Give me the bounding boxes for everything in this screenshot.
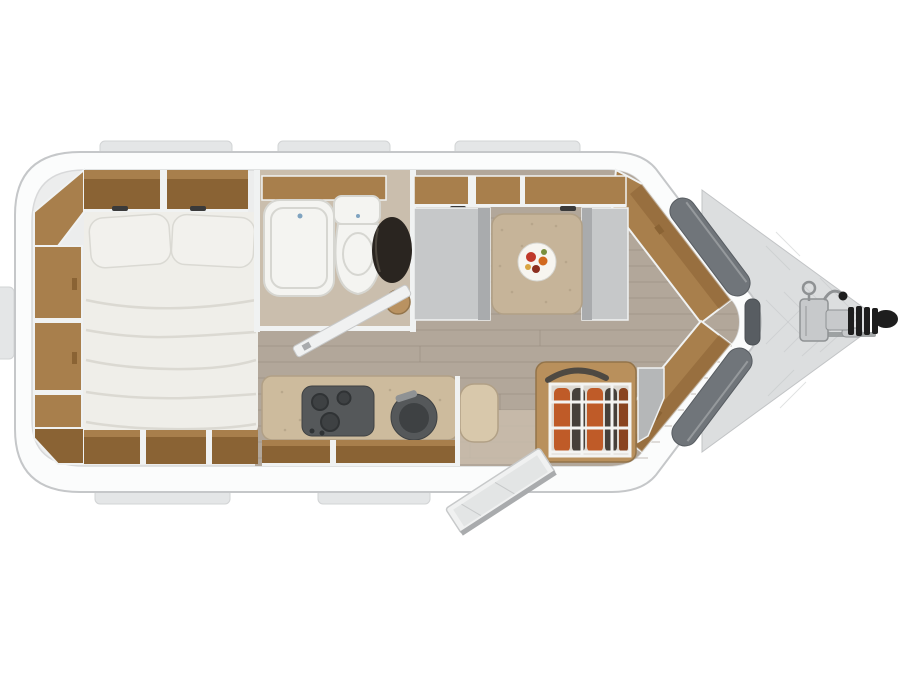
toilet-cistern — [334, 196, 380, 224]
bottle — [554, 388, 570, 452]
hob-knob — [320, 431, 325, 436]
shelf-edge — [84, 209, 248, 212]
nose-tip-panel — [745, 299, 760, 345]
brake-handle-knob — [839, 292, 848, 301]
fruit-orange — [539, 257, 548, 266]
bench-left-side-face — [478, 208, 490, 320]
shelf-divider — [160, 170, 167, 212]
fruit-yellow — [525, 264, 531, 270]
grip-rib — [856, 306, 862, 336]
hob-burner — [312, 394, 328, 410]
drawer-divider — [330, 440, 336, 466]
side-rail-tab — [0, 287, 14, 359]
locker-divider — [520, 176, 525, 206]
hob-knob — [310, 429, 315, 434]
drawer-lip — [262, 440, 456, 446]
foot-shelf-lip — [84, 430, 258, 437]
wardrobe-divider — [34, 390, 82, 395]
reading-light — [112, 206, 128, 211]
kitchen — [262, 376, 536, 466]
locker-edge — [414, 204, 626, 207]
dinette — [414, 176, 628, 320]
caravan-floorplan-image — [0, 0, 900, 675]
shelf-divider — [140, 430, 146, 464]
pillow-right — [171, 214, 256, 268]
reading-light — [190, 206, 206, 211]
bedroom — [34, 170, 258, 464]
bottle — [619, 388, 628, 452]
sink-basin — [399, 403, 429, 433]
pillow-left — [88, 213, 171, 268]
locker-divider — [468, 176, 476, 206]
grip-rib — [848, 307, 854, 335]
grip-rib — [864, 307, 870, 335]
fruit-green — [541, 249, 547, 255]
kitchen-end-wall — [455, 376, 460, 466]
bottle — [587, 388, 603, 452]
floorplan-svg — [0, 0, 900, 675]
wardrobe-divider — [34, 318, 82, 323]
washbasin — [372, 217, 412, 283]
washroom — [254, 170, 416, 358]
shower-drain — [298, 214, 303, 219]
fruit-red — [526, 252, 536, 262]
bench-right-side-face — [582, 208, 592, 320]
hob-burner — [321, 413, 339, 431]
reading-light — [560, 206, 576, 211]
wardrobe-column-left — [34, 246, 82, 432]
grip-end — [874, 310, 898, 328]
drawer-edge — [262, 463, 456, 466]
coupling-bracket — [800, 299, 828, 341]
shelf-divider — [206, 430, 212, 464]
hob-burner — [338, 392, 351, 405]
toilet-flush-button — [356, 214, 360, 218]
fruit-plate — [518, 243, 556, 281]
fruit-dark-red — [532, 265, 540, 273]
coupling-neck — [826, 310, 850, 330]
cabinet-handle — [72, 352, 77, 364]
worktop-flap — [460, 384, 498, 442]
washroom-wall-left — [254, 170, 260, 332]
cabinet-handle — [72, 278, 77, 290]
